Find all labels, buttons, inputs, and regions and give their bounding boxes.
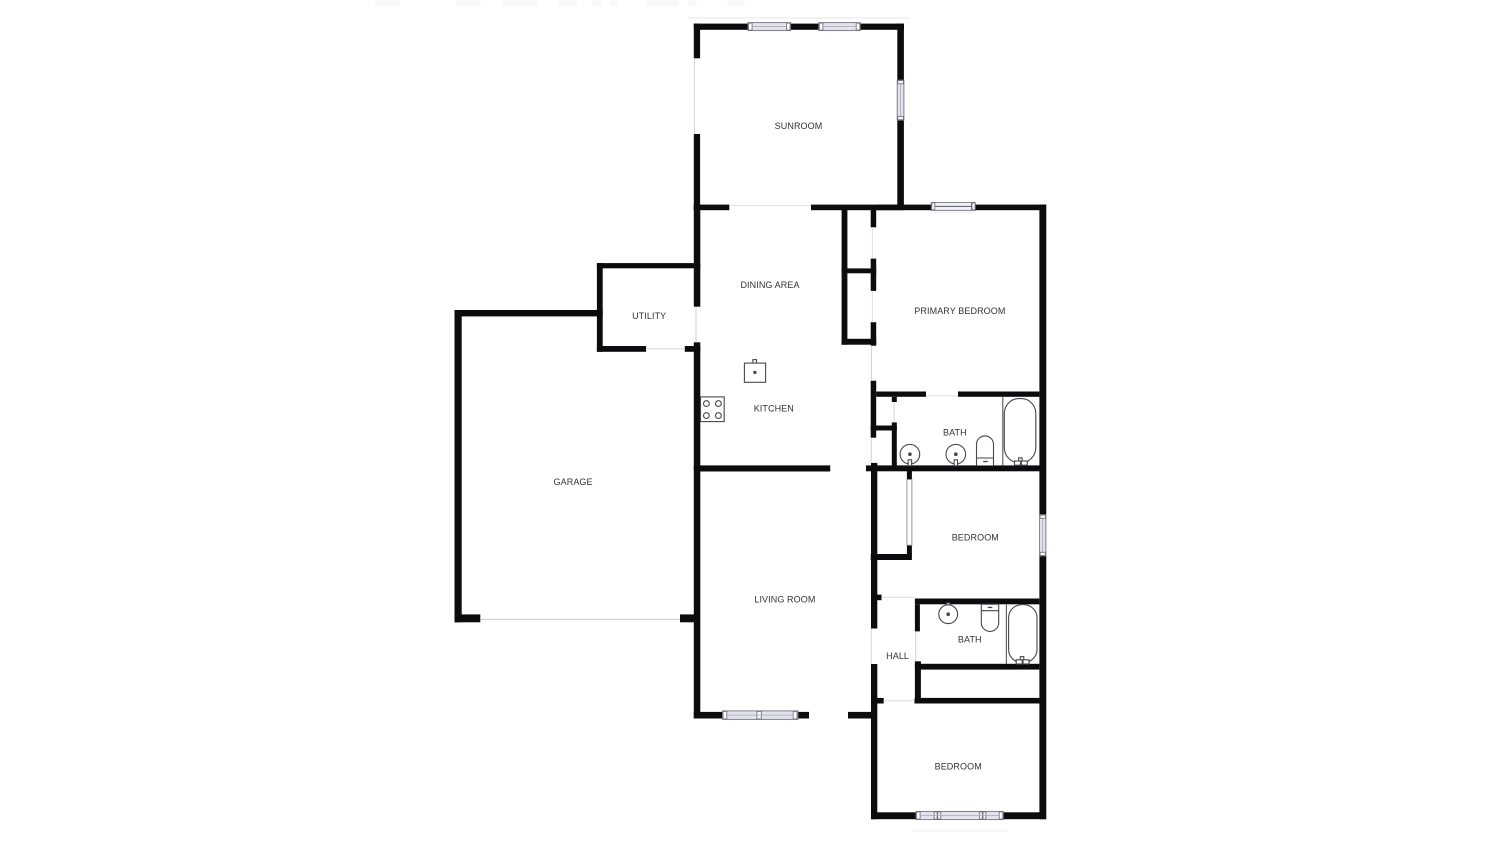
svg-text:DINING AREA: DINING AREA [740, 280, 799, 290]
svg-text:HALL: HALL [886, 651, 909, 661]
svg-text:UTILITY: UTILITY [632, 311, 666, 321]
svg-text:BATH: BATH [958, 635, 982, 645]
svg-text:BEDROOM: BEDROOM [935, 762, 982, 772]
svg-text:PRIMARY BEDROOM: PRIMARY BEDROOM [914, 306, 1005, 316]
svg-text:BATH: BATH [943, 428, 967, 438]
svg-text:SUNROOM: SUNROOM [775, 121, 823, 131]
svg-text:KITCHEN: KITCHEN [754, 404, 794, 414]
svg-text:BEDROOM: BEDROOM [952, 532, 999, 542]
svg-text:GARAGE: GARAGE [554, 477, 593, 487]
svg-text:LIVING ROOM: LIVING ROOM [754, 594, 815, 604]
